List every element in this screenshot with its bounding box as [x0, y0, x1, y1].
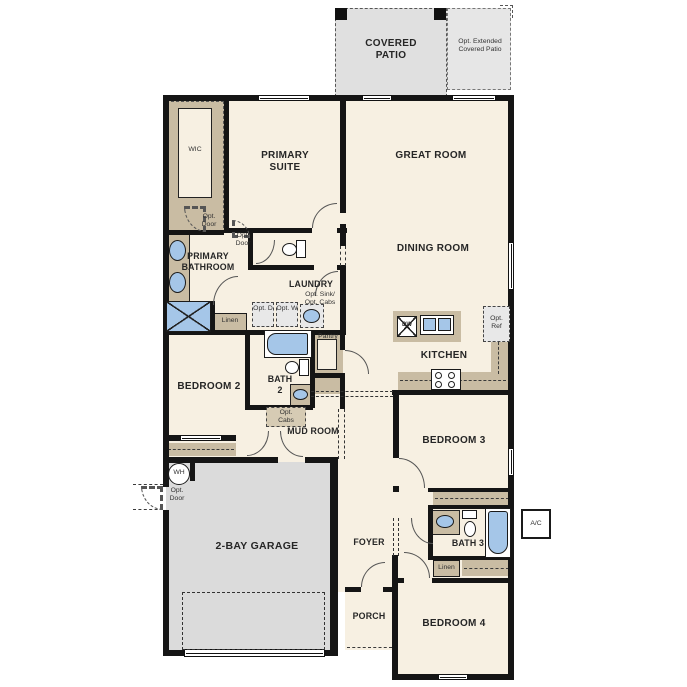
cased-opening [393, 518, 399, 556]
wall [163, 510, 169, 656]
room-label-laundry: LAUNDRY [282, 279, 340, 290]
room-label-primary-bathroom: PRIMARY BATHROOM [168, 251, 248, 272]
opt-w-label: Opt. W [276, 305, 298, 313]
bath3-sink-icon [436, 515, 454, 528]
closet-rod [435, 498, 509, 499]
sink-basin-icon [438, 318, 451, 331]
room-label-dining-room: DINING ROOM [396, 243, 470, 255]
room-label-porch: PORCH [346, 611, 392, 622]
patio-post [434, 8, 446, 20]
sink-basin-icon [423, 318, 436, 331]
room-label-wic: WIC [182, 146, 208, 154]
shower-icon [166, 301, 211, 332]
bathtub-basin-icon [267, 333, 308, 355]
linen1-label: Linen [213, 317, 247, 325]
opt-door-arc-garage [141, 486, 163, 510]
pantry-label: Pantry [312, 333, 344, 341]
wall [166, 435, 180, 441]
wall [393, 390, 399, 458]
burner-icon [448, 381, 455, 388]
window [508, 242, 514, 290]
opt-door-label: Opt. Door [230, 232, 256, 249]
wall [305, 457, 338, 463]
ac-label: A/C [530, 520, 541, 528]
laundry-sink-icon [303, 309, 320, 323]
wall [340, 224, 346, 246]
ext-patio-corner [500, 5, 513, 18]
dw-label: DW [398, 322, 416, 330]
room-label-primary-suite: PRIMARY SUITE [246, 150, 324, 174]
room-label-ext-patio: Opt. Extended Covered Patio [451, 38, 509, 55]
wall [245, 330, 250, 408]
toilet-tank-icon [462, 510, 477, 519]
wall [392, 555, 398, 680]
room-label-bath2: BATH 2 [264, 374, 296, 395]
toilet-tank-icon [299, 359, 309, 376]
wh-label: WH [168, 469, 190, 477]
closet-rod [168, 449, 234, 450]
upper-cabinet-line [498, 342, 499, 374]
porch-edge [347, 647, 392, 648]
room-label-kitchen: KITCHEN [408, 350, 480, 362]
bathroom-sink-icon [169, 272, 186, 293]
wall [330, 457, 338, 656]
garage-door [184, 649, 325, 657]
cased-opening [340, 246, 346, 266]
patio-post [335, 8, 347, 20]
wall [340, 101, 346, 213]
closet-rod [464, 568, 509, 569]
room-label-bedroom2: BEDROOM 2 [170, 381, 248, 393]
wall [432, 578, 513, 583]
wall [392, 578, 404, 583]
room-label-mud-room: MUD ROOM [286, 426, 340, 437]
burner-icon [435, 372, 442, 379]
room-label-great-room: GREAT ROOM [394, 150, 468, 162]
window [258, 95, 310, 101]
opt-ref-label: Opt. Ref [485, 315, 508, 332]
opt-door-label: Opt. Door [197, 213, 221, 230]
wall [248, 265, 314, 270]
room-label-bedroom4: BEDROOM 4 [412, 618, 496, 630]
window [508, 448, 514, 476]
ceiling-break [311, 391, 393, 397]
wall [508, 95, 514, 680]
wall [166, 230, 224, 235]
burner-icon [448, 372, 455, 379]
opt-d-label: Opt. D [252, 305, 274, 313]
window [438, 674, 468, 680]
wall [428, 488, 513, 492]
wall [224, 101, 229, 233]
window [452, 95, 496, 101]
pantry-floor [317, 339, 337, 370]
floor-plan: A/C COVERED PATIO Opt. Extended Covered … [0, 0, 687, 687]
room-label-bath3: BATH 3 [446, 538, 490, 549]
room-label-garage: 2-BAY GARAGE [212, 540, 302, 553]
garage-apron [182, 592, 325, 650]
toilet-tank-icon [296, 240, 306, 258]
room-label-covered-patio: COVERED PATIO [356, 38, 426, 62]
opt-door-line [133, 484, 163, 485]
linen2-label: Linen [433, 564, 460, 572]
room-label-bedroom3: BEDROOM 3 [412, 435, 496, 447]
toilet-bowl-icon [464, 521, 476, 537]
opt-cabs-label: Opt. Cabs [271, 409, 301, 426]
toilet-bowl-icon [285, 361, 299, 374]
wall [392, 390, 513, 395]
wall [222, 435, 236, 441]
wall [190, 461, 195, 481]
room-label-foyer: FOYER [346, 537, 392, 548]
bathtub-basin-icon [488, 511, 508, 554]
opt-door-label: Opt. Door [165, 487, 189, 504]
kitchen-counter-right [491, 340, 508, 374]
wall [345, 587, 361, 592]
burner-icon [435, 381, 442, 388]
toilet-bowl-icon [282, 243, 297, 256]
opt-sink-cabs-label: Opt. Sink/ Opt. Cabs [298, 291, 342, 308]
ac-unit: A/C [521, 509, 551, 539]
wall [163, 95, 169, 487]
closet-doors [180, 435, 222, 441]
window [362, 95, 392, 101]
wall [383, 587, 394, 592]
